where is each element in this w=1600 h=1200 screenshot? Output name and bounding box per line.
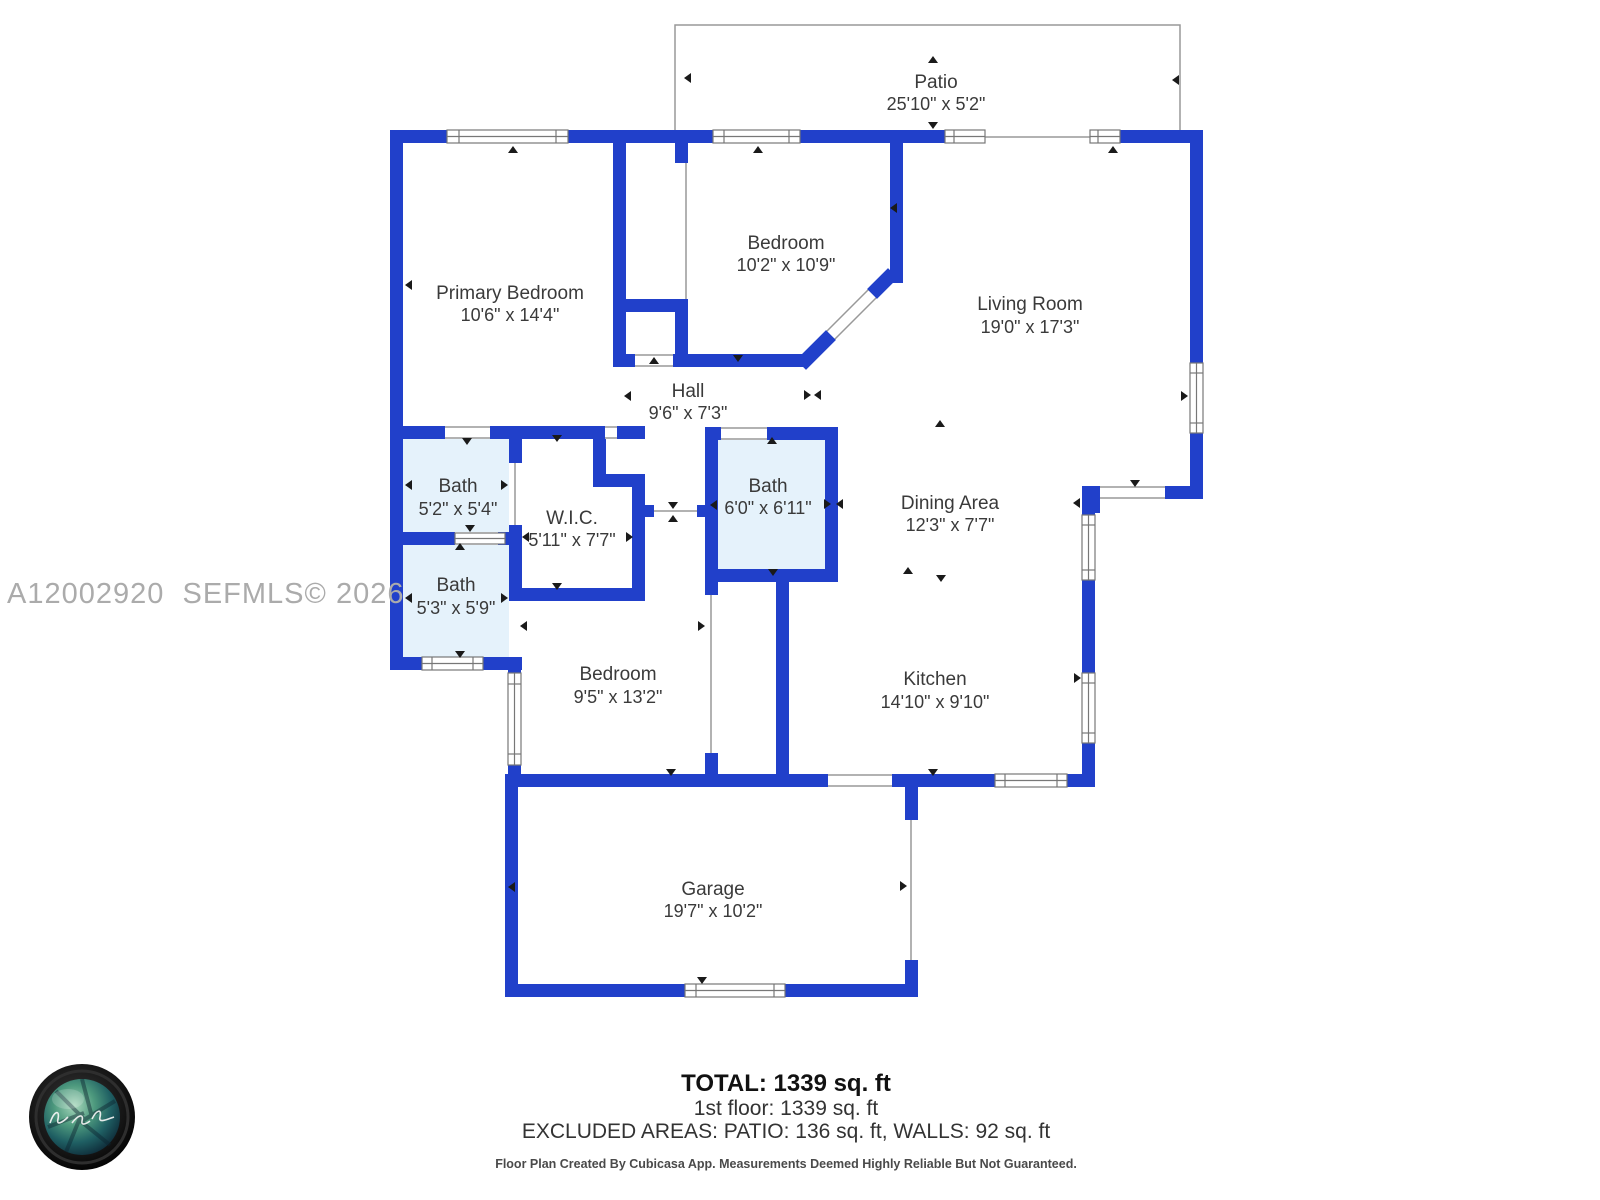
excluded-areas-text: EXCLUDED AREAS: PATIO: 136 sq. ft, WALLS… (0, 1120, 1572, 1143)
window (685, 984, 785, 997)
room-dims-wic: 5'11" x 7'7" (528, 530, 615, 550)
disclaimer-text: Floor Plan Created By Cubicasa App. Meas… (0, 1157, 1572, 1171)
mls-watermark: A12002920 SEFMLS© 2026 (7, 578, 404, 611)
window (995, 774, 1067, 787)
first-floor-text: 1st floor: 1339 sq. ft (0, 1097, 1572, 1120)
room-dims-bath-2: 6'0" x 6'11" (724, 498, 811, 518)
room-label-living-room: Living Room (977, 294, 1083, 315)
room-label-bath-2: Bath (748, 476, 787, 497)
room-dims-bath-1: 5'2" x 5'4" (419, 499, 498, 519)
room-label-bath-1: Bath (438, 476, 477, 497)
window (1082, 515, 1095, 580)
sliding-door (455, 533, 505, 544)
room-dims-garage: 19'7" x 10'2" (664, 901, 763, 921)
room-dims-kitchen: 14'10" x 9'10" (881, 692, 990, 712)
total-area-text: TOTAL: 1339 sq. ft (0, 1070, 1572, 1097)
room-label-hall: Hall (672, 381, 705, 402)
window (713, 130, 800, 143)
room-dims-bedroom-top: 10'2" x 10'9" (737, 255, 836, 275)
room-label-bedroom-top: Bedroom (747, 233, 824, 254)
room-dims-hall: 9'6" x 7'3" (649, 403, 728, 423)
room-dims-bath-3: 5'3" x 5'9" (417, 598, 496, 618)
room-label-dining-area: Dining Area (901, 493, 1000, 514)
window (945, 130, 985, 143)
room-dims-bedroom-lower: 9'5" x 13'2" (574, 687, 663, 707)
room-dims-primary-bedroom: 10'6" x 14'4" (461, 305, 560, 325)
room-label-garage: Garage (681, 879, 744, 900)
area-summary: TOTAL: 1339 sq. ft 1st floor: 1339 sq. f… (0, 1070, 1572, 1171)
room-label-kitchen: Kitchen (903, 669, 966, 690)
window (1090, 130, 1120, 143)
room-dims-dining-area: 12'3" x 7'7" (906, 515, 995, 535)
room-dims-living-room: 19'0" x 17'3" (981, 317, 1080, 337)
window (447, 130, 568, 143)
room-label-bath-3: Bath (436, 575, 475, 596)
room-label-primary-bedroom: Primary Bedroom (436, 283, 584, 304)
room-label-patio: Patio (914, 72, 957, 93)
window (422, 657, 483, 670)
window (1190, 363, 1203, 433)
room-dims-patio: 25'10" x 5'2" (887, 94, 986, 114)
room-label-wic: W.I.C. (546, 508, 598, 529)
window (508, 673, 521, 765)
window (1082, 673, 1095, 743)
room-label-bedroom-lower: Bedroom (579, 664, 656, 685)
